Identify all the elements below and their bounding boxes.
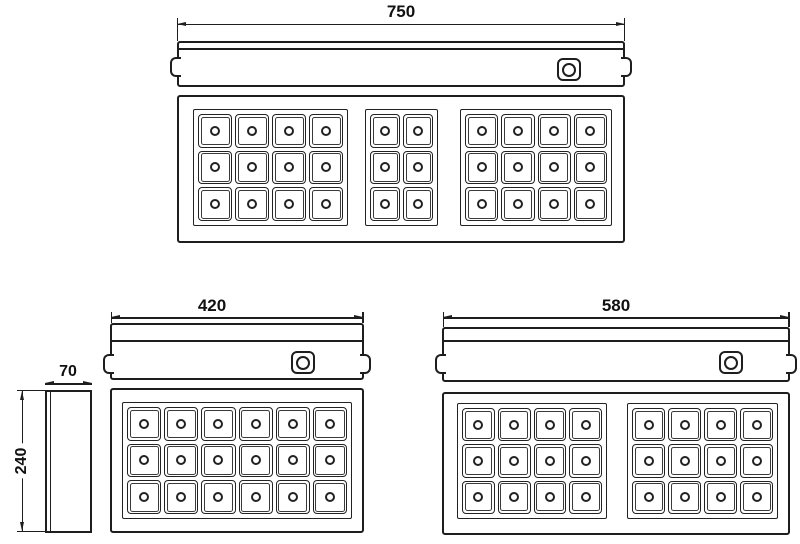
magnetic-pole <box>272 151 306 185</box>
pole-center-hole <box>247 126 257 136</box>
pole-center-hole <box>284 126 294 136</box>
pole-center-hole <box>644 420 654 430</box>
magnetic-pole <box>538 187 571 221</box>
magnetic-pole <box>201 480 235 514</box>
magnetic-pole <box>569 481 602 514</box>
dimension-arrow-left-580 <box>443 315 452 319</box>
magnetic-pole <box>239 444 273 478</box>
dimension-arrow-right-420 <box>354 315 363 319</box>
magnetic-pole <box>538 114 571 148</box>
pole-center-hole <box>477 126 487 136</box>
magnetic-pole <box>127 444 161 478</box>
magnetic-pole <box>164 444 198 478</box>
magnetic-pole <box>574 151 607 185</box>
chuck-420-bolt-hole <box>291 351 315 374</box>
magnetic-pole <box>164 480 198 514</box>
magnetic-pole <box>272 114 306 148</box>
dimension-arrow-down-240 <box>20 522 24 531</box>
magnetic-pole <box>501 187 534 221</box>
pole-center-hole <box>288 492 298 502</box>
magnetic-pole <box>272 187 306 221</box>
magnetic-pole <box>313 407 347 441</box>
magnetic-pole <box>198 187 232 221</box>
chuck-750-pole-group-1 <box>193 109 348 226</box>
pole-center-hole <box>251 492 261 502</box>
magnetic-pole <box>276 444 310 478</box>
magnetic-pole <box>239 480 273 514</box>
dimension-arrow-left-750 <box>177 22 186 26</box>
magnetic-pole <box>465 151 498 185</box>
magnetic-pole <box>462 444 495 477</box>
dimension-arrow-right-750 <box>616 22 625 26</box>
dimension-arrow-right-70 <box>83 381 92 385</box>
chuck-750-left-keyway-notch <box>170 57 181 77</box>
side-profile-inner-line <box>50 392 51 531</box>
dimension-line-750 <box>177 24 625 26</box>
chuck-580-bolt-hole <box>719 351 743 374</box>
magnetic-pole <box>632 444 665 477</box>
chuck-420-left-keyway-notch <box>103 354 114 374</box>
chuck-750-rail-step-line <box>179 48 623 50</box>
dimension-label-580: 580 <box>602 297 630 315</box>
chuck-420-pole-group-1 <box>122 402 352 519</box>
magnetic-pole <box>534 408 567 441</box>
magnetic-pole <box>309 114 343 148</box>
chuck-420-bolt-circle <box>296 356 310 370</box>
magnetic-pole <box>704 444 737 477</box>
dimension-label-240: 240 <box>14 444 30 479</box>
pole-center-hole <box>752 420 762 430</box>
chuck-750-bolt-hole <box>557 58 581 81</box>
magnetic-pole <box>740 408 773 441</box>
magnetic-pole <box>501 151 534 185</box>
magnetic-pole <box>498 481 531 514</box>
chuck-420-right-keyway-notch <box>360 354 371 374</box>
magnetic-pole <box>465 114 498 148</box>
pole-center-hole <box>581 492 591 502</box>
chuck-580-right-keyway-notch <box>786 354 797 374</box>
magnetic-pole <box>403 114 433 148</box>
pole-center-hole <box>509 420 519 430</box>
magnetic-pole <box>235 114 269 148</box>
magnetic-pole <box>313 480 347 514</box>
magnetic-pole <box>235 187 269 221</box>
magnetic-pole <box>313 444 347 478</box>
magnetic-pole <box>498 444 531 477</box>
magnetic-pole <box>462 408 495 441</box>
chuck-580-pole-group-2 <box>627 403 778 519</box>
pole-center-hole <box>321 126 331 136</box>
magnetic-pole <box>370 187 400 221</box>
magnetic-pole <box>462 481 495 514</box>
magnetic-pole <box>668 481 701 514</box>
chuck-750-right-keyway-notch <box>621 57 632 77</box>
magnetic-pole <box>276 480 310 514</box>
magnetic-pole <box>127 407 161 441</box>
magnetic-pole <box>538 151 571 185</box>
magnetic-pole <box>704 481 737 514</box>
pole-center-hole <box>545 456 555 466</box>
side-profile-view <box>45 390 92 533</box>
pole-center-hole <box>680 456 690 466</box>
pole-center-hole <box>581 456 591 466</box>
magnetic-pole <box>201 444 235 478</box>
magnetic-pole <box>309 151 343 185</box>
pole-center-hole <box>251 419 261 429</box>
pole-center-hole <box>716 492 726 502</box>
magnetic-pole <box>574 114 607 148</box>
dimension-arrow-left-420 <box>111 315 120 319</box>
magnetic-pole <box>164 407 198 441</box>
magnetic-pole <box>740 481 773 514</box>
pole-center-hole <box>680 492 690 502</box>
pole-center-hole <box>473 420 483 430</box>
magnetic-pole <box>198 151 232 185</box>
magnetic-pole <box>235 151 269 185</box>
magnetic-pole <box>239 407 273 441</box>
magnetic-pole <box>498 408 531 441</box>
magnetic-pole <box>740 444 773 477</box>
chuck-580-pole-group-1 <box>457 403 607 519</box>
pole-center-hole <box>288 419 298 429</box>
magnetic-pole <box>704 408 737 441</box>
magnetic-pole <box>574 187 607 221</box>
dimension-line-420 <box>111 317 363 319</box>
pole-center-hole <box>644 456 654 466</box>
magnetic-pole <box>198 114 232 148</box>
magnetic-pole <box>127 480 161 514</box>
dimension-label-420: 420 <box>198 297 226 315</box>
pole-center-hole <box>716 456 726 466</box>
pole-center-hole <box>477 199 487 209</box>
dimension-line-580 <box>443 317 789 319</box>
pole-center-hole <box>325 492 335 502</box>
magnetic-pole <box>534 481 567 514</box>
pole-center-hole <box>581 420 591 430</box>
magnetic-pole <box>403 187 433 221</box>
pole-center-hole <box>752 456 762 466</box>
pole-center-hole <box>680 420 690 430</box>
pole-center-hole <box>545 420 555 430</box>
chuck-750-bolt-circle <box>562 63 576 77</box>
chuck-580-left-keyway-notch <box>435 354 446 374</box>
magnetic-pole <box>276 407 310 441</box>
magnetic-pole <box>309 187 343 221</box>
pole-center-hole <box>752 492 762 502</box>
dimension-arrow-up-240 <box>20 391 24 400</box>
pole-center-hole <box>210 126 220 136</box>
dimension-arrow-left-70 <box>45 381 54 385</box>
pole-center-hole <box>716 420 726 430</box>
magnetic-pole <box>668 444 701 477</box>
dimension-arrow-right-580 <box>780 315 789 319</box>
pole-center-hole <box>325 419 335 429</box>
pole-center-hole <box>549 126 559 136</box>
magnetic-pole <box>403 151 433 185</box>
dimension-label-70: 70 <box>59 363 77 381</box>
magnetic-pole <box>201 407 235 441</box>
magnetic-pole <box>569 408 602 441</box>
pole-center-hole <box>644 492 654 502</box>
pole-center-hole <box>513 126 523 136</box>
chuck-420-side-rail <box>110 323 364 380</box>
magnetic-pole <box>465 187 498 221</box>
pole-center-hole <box>513 199 523 209</box>
chuck-580-bolt-circle <box>724 356 738 370</box>
pole-center-hole <box>413 126 423 136</box>
magnetic-pole <box>569 444 602 477</box>
magnetic-pole <box>632 408 665 441</box>
chuck-750-pole-group-2 <box>365 109 438 226</box>
magnetic-pole <box>370 114 400 148</box>
magnetic-pole <box>632 481 665 514</box>
magnetic-pole <box>668 408 701 441</box>
dimension-label-750: 750 <box>387 3 415 21</box>
chuck-580-rail-step-line <box>444 340 788 342</box>
chuck-750-pole-group-3 <box>460 109 612 226</box>
chuck-420-rail-step-line <box>112 340 362 342</box>
pole-center-hole <box>380 126 390 136</box>
pole-center-hole <box>139 419 149 429</box>
technical-drawing-canvas: 750 420 580 70 2 <box>0 0 800 544</box>
magnetic-pole <box>370 151 400 185</box>
magnetic-pole <box>534 444 567 477</box>
magnetic-pole <box>501 114 534 148</box>
